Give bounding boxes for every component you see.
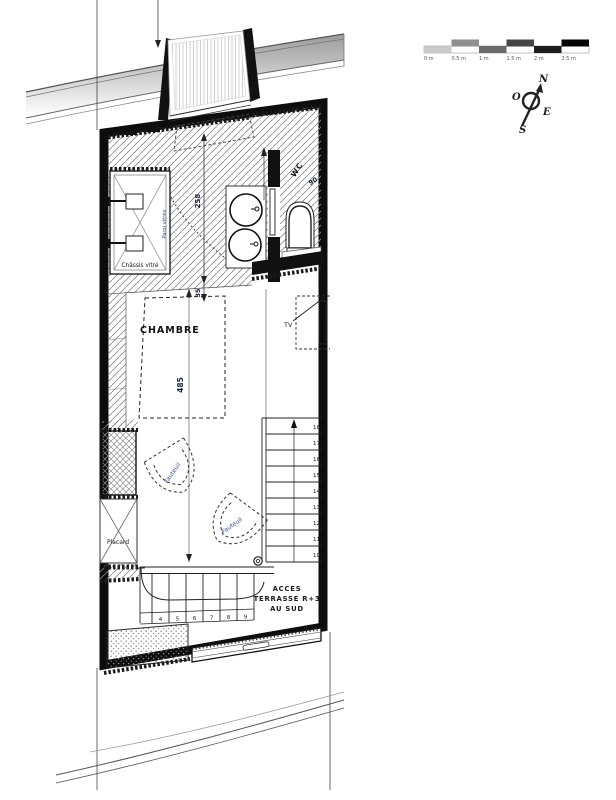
north-compass: N O E S [512,74,551,136]
stair-number: 10 [313,553,320,559]
basin-icon [229,229,261,261]
stair-number: 15 [313,473,320,479]
stair-number: 4 [159,617,163,623]
scale-label: 0 m [424,56,434,62]
label-chassis-vitre: Châssis vitré [122,262,159,269]
stair-number: 14 [313,489,320,495]
reference-lines-top [97,0,161,130]
acces-line2: TERRASSE R+3 [254,595,321,603]
stair-numbers-upper: 10 11 12 13 14 15 16 17 18 [313,425,320,559]
toilet [286,202,314,253]
down-arrow-icon [155,40,161,48]
stair-number: 8 [227,615,231,621]
scale-label: 0.5 m [452,56,467,62]
dim-485: 485 [176,377,185,393]
scale-label: 2 m [534,56,544,62]
compass-east: E [542,107,551,118]
scale-label: 1.5 m [507,56,522,62]
label-tv: TV [283,321,293,329]
floor-plan-page: 0 m 0.5 m 1 m 1.5 m 2 m 2.5 m N O E S CH… [0,0,616,800]
acces-line1: ACCES [273,585,302,593]
terrace-stipple [104,624,190,673]
stair-number: 16 [313,457,320,463]
acces-line3: AU SUD [270,605,304,613]
stair-number: 18 [313,425,320,431]
scale-bar: 0 m 0.5 m 1 m 1.5 m 2 m 2.5 m [424,40,589,63]
stair-number: 11 [313,537,320,543]
stair-number: 5 [176,617,180,623]
fixture-icon [126,194,143,209]
room-label-chambre: CHAMBRE [140,325,200,336]
compass-south: S [519,125,526,136]
floor-plan-drawing: 0 m 0.5 m 1 m 1.5 m 2 m 2.5 m N O E S CH… [0,0,616,800]
stair-number: 12 [313,521,320,527]
fixture-icon [126,236,143,251]
skylight-dormer [158,28,260,121]
shower-glazed-box [107,169,170,274]
newel-post [254,557,262,565]
scale-label: 2.5 m [562,56,577,62]
compass-north: N [538,74,549,85]
dim-35: 35 [194,288,202,298]
basin-icon [230,194,262,226]
duct-shaft [100,419,138,497]
scale-label: 1 m [479,56,489,62]
stair-number: 17 [313,441,320,447]
vanity-double-basin [226,186,266,268]
stair-number: 6 [193,616,197,622]
room-label-placard: Placard [107,539,129,546]
dim-258: 258 [194,194,202,209]
stair-number: 7 [210,616,214,622]
stair-number: 9 [244,615,248,621]
compass-west: O [512,92,521,103]
sliding-door [270,189,275,235]
stair-number: 13 [313,505,320,511]
label-paroi-vitree: Paroi vitrée [161,209,168,238]
